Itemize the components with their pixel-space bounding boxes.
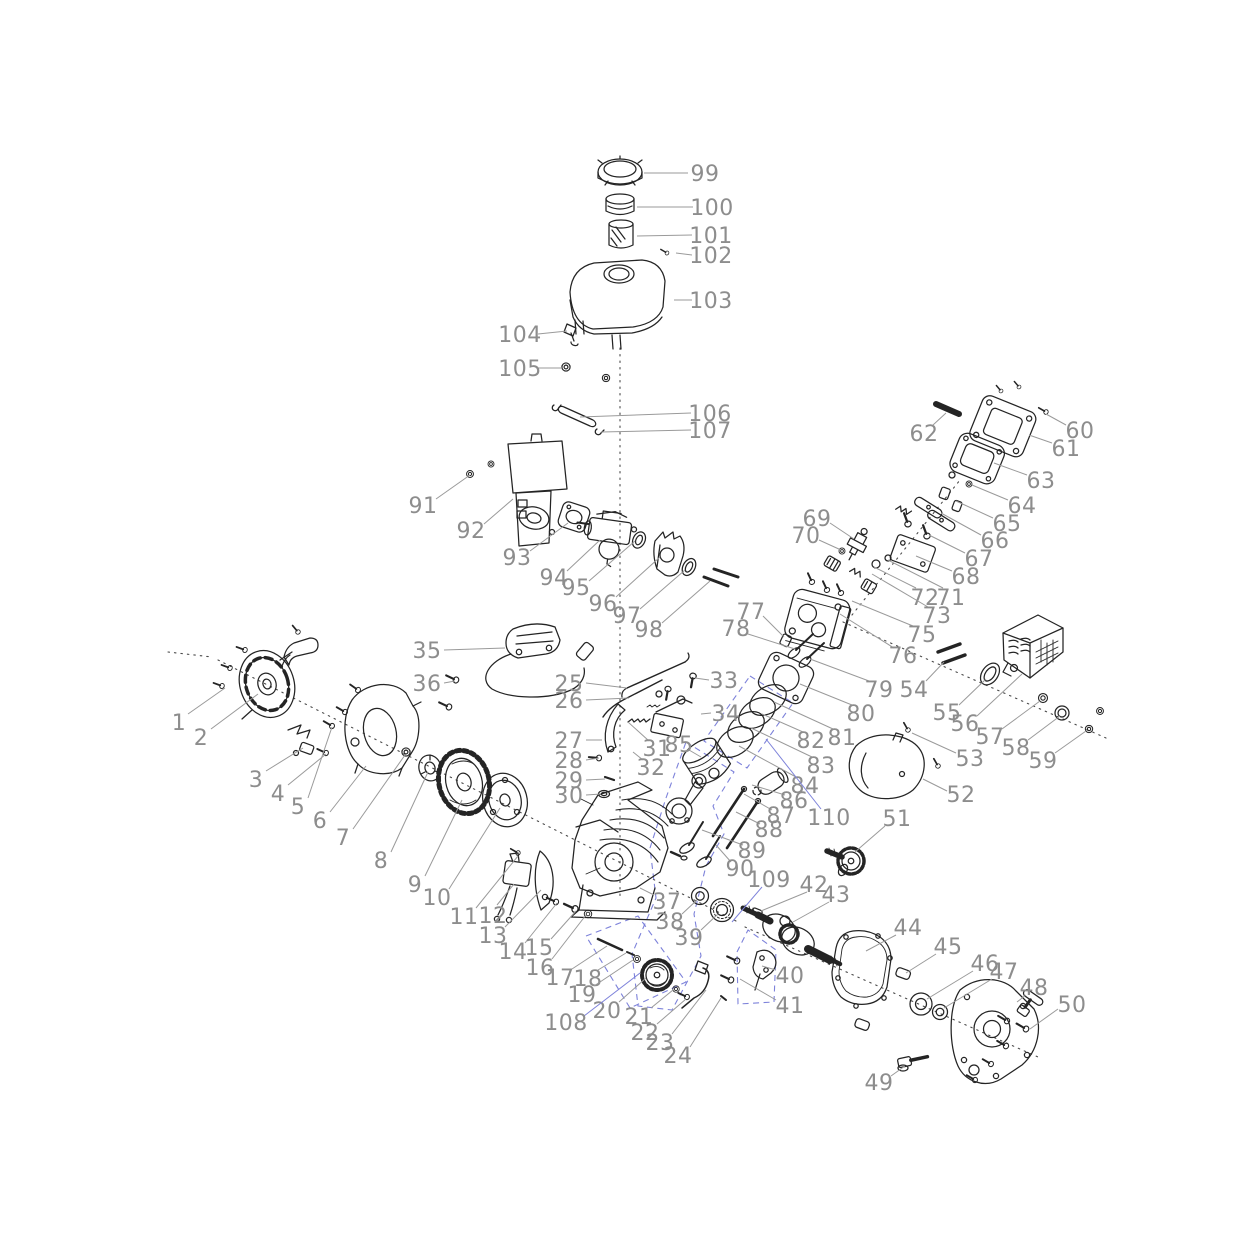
leader-line-5 — [308, 727, 332, 798]
part-label-99: 99 — [691, 162, 720, 187]
leader-line-13 — [505, 890, 541, 927]
fan-cover — [345, 685, 421, 776]
part-label-24: 24 — [664, 1044, 693, 1069]
leader-line-95 — [589, 541, 635, 581]
leader-line-70 — [819, 540, 841, 550]
carb-gasket-inner — [557, 500, 592, 533]
leader-line-80 — [800, 684, 852, 705]
part-label-91: 91 — [409, 494, 438, 519]
centerlines — [168, 348, 1106, 1057]
leader-line-3 — [266, 748, 303, 771]
part-label-49: 49 — [865, 1071, 894, 1096]
leader-line-10 — [449, 808, 500, 889]
governor-rod — [622, 653, 689, 697]
part-label-8: 8 — [374, 849, 389, 874]
part-label-26: 26 — [555, 689, 584, 714]
callout-labels: 1234567891011121314151617181920212223242… — [172, 162, 1095, 1096]
leader-line-68 — [916, 556, 952, 571]
part-label-85: 85 — [665, 733, 694, 758]
leader-line-65 — [956, 501, 993, 518]
part-label-57: 57 — [976, 725, 1005, 750]
fuel-filter-cup — [609, 220, 633, 248]
crankshaft — [743, 905, 840, 966]
rod-cap — [753, 950, 776, 990]
head-valves — [786, 634, 824, 669]
part-label-36: 36 — [413, 672, 442, 697]
part-label-108: 108 — [544, 1011, 588, 1036]
leader-line-72 — [874, 567, 916, 588]
leader-line-67 — [929, 535, 965, 553]
leader-line-76 — [840, 614, 894, 648]
part-label-9: 9 — [408, 873, 423, 898]
tank-screw — [660, 248, 670, 256]
part-label-34: 34 — [712, 702, 741, 727]
governor-shaft-pin — [598, 939, 641, 963]
part-label-103: 103 — [689, 289, 733, 314]
leader-line-81 — [774, 702, 833, 729]
part-label-104: 104 — [498, 323, 542, 348]
leader-line-69 — [830, 523, 854, 539]
part-label-30: 30 — [555, 784, 584, 809]
air-cleaner — [508, 434, 567, 546]
part-label-95: 95 — [562, 576, 591, 601]
tank-nuts — [562, 363, 610, 382]
heat-shroud — [849, 733, 924, 799]
part-label-51: 51 — [883, 807, 912, 832]
part-label-32: 32 — [637, 756, 666, 781]
leader-line-51 — [855, 826, 885, 852]
leader-line-23 — [672, 990, 706, 1034]
part-label-50: 50 — [1058, 993, 1087, 1018]
part-label-4: 4 — [271, 782, 286, 807]
part-label-80: 80 — [847, 702, 876, 727]
part-label-70: 70 — [792, 524, 821, 549]
fuel-cap — [598, 156, 642, 185]
leader-line-79 — [810, 659, 869, 681]
part-label-63: 63 — [1027, 469, 1056, 494]
leader-line-47 — [944, 979, 992, 1008]
leader-line-54 — [926, 662, 944, 681]
camshaft — [827, 848, 864, 877]
leader-line-98 — [662, 581, 710, 623]
carb-gasket-outer — [630, 530, 648, 550]
part-label-107: 107 — [688, 419, 732, 444]
fuel-filter-neck — [606, 194, 634, 215]
fuel-tank — [570, 260, 665, 349]
oil-seal-left — [692, 888, 709, 905]
throttle-spring — [628, 719, 650, 722]
leader-line-33 — [695, 678, 709, 680]
leader-line-96 — [616, 557, 660, 597]
leader-line-12 — [497, 884, 514, 905]
leader-line-6 — [330, 766, 366, 812]
part-label-62: 62 — [910, 422, 939, 447]
throttle-control — [647, 691, 692, 738]
valvetrain-small-parts — [889, 472, 972, 573]
leader-line-61 — [1029, 435, 1052, 443]
part-label-102: 102 — [689, 244, 733, 269]
leader-line-106 — [580, 413, 691, 417]
part-label-40: 40 — [776, 964, 805, 989]
part-label-43: 43 — [822, 883, 851, 908]
leader-line-11 — [476, 856, 518, 908]
part-label-14: 14 — [499, 940, 528, 965]
part-label-11: 11 — [450, 905, 479, 930]
part-label-61: 61 — [1052, 437, 1081, 462]
part-label-100: 100 — [690, 196, 734, 221]
stiffener-bracket — [535, 851, 553, 910]
part-label-92: 92 — [457, 519, 486, 544]
part-label-35: 35 — [413, 639, 442, 664]
part-label-33: 33 — [710, 669, 739, 694]
leader-line-77 — [763, 616, 784, 637]
flywheel-nut — [402, 748, 410, 756]
parts-diagram-page: 1234567891011121314151617181920212223242… — [0, 0, 1248, 1248]
muffler — [1003, 615, 1063, 678]
part-label-110: 110 — [807, 806, 851, 831]
leader-line-34 — [701, 713, 711, 714]
leader-line-22 — [657, 999, 686, 1024]
part-label-81: 81 — [828, 726, 857, 751]
part-label-44: 44 — [894, 916, 923, 941]
carb-insulator — [654, 532, 684, 576]
part-label-78: 78 — [722, 617, 751, 642]
part-label-58: 58 — [1002, 736, 1031, 761]
leader-line-66 — [941, 513, 981, 535]
part-label-79: 79 — [865, 678, 894, 703]
part-label-105: 105 — [498, 357, 542, 382]
stop-switch-wire — [288, 725, 314, 756]
leader-line-1 — [188, 688, 225, 714]
part-label-7: 7 — [336, 826, 351, 851]
part-label-10: 10 — [423, 886, 452, 911]
part-label-98: 98 — [635, 618, 664, 643]
leader-line-53 — [912, 733, 956, 753]
part-label-48: 48 — [1020, 976, 1049, 1001]
recoil-starter — [231, 638, 318, 725]
leader-line-21 — [651, 990, 673, 1008]
leader-line-9 — [425, 800, 462, 876]
part-label-39: 39 — [675, 926, 704, 951]
head-studs — [938, 644, 965, 663]
woodruff-key-flywheel — [510, 847, 521, 856]
part-label-52: 52 — [947, 783, 976, 808]
breather-pipe — [936, 404, 959, 414]
leader-line-64 — [972, 485, 1008, 500]
leader-line-57 — [1002, 701, 1040, 729]
part-label-47: 47 — [990, 960, 1019, 985]
part-label-1: 1 — [172, 711, 187, 736]
shroud-screws — [902, 722, 941, 769]
leader-line-35 — [444, 648, 505, 650]
leader-line-94 — [567, 540, 600, 571]
part-label-109: 109 — [747, 868, 791, 893]
leader-line-20 — [619, 978, 646, 1002]
leader-line-17 — [572, 946, 607, 969]
leader-line-39 — [701, 914, 718, 930]
part-label-5: 5 — [291, 795, 306, 820]
group-outline-rod-bolts — [737, 930, 776, 1004]
leader-line-59 — [1055, 731, 1086, 753]
cover-screws — [316, 682, 361, 756]
fuel-hose — [552, 405, 604, 435]
leader-line-8 — [391, 772, 428, 852]
cylinder-head — [782, 572, 853, 655]
part-label-6: 6 — [313, 809, 328, 834]
part-label-3: 3 — [249, 768, 264, 793]
leader-line-97 — [640, 570, 685, 609]
leader-line-15 — [551, 911, 576, 939]
part-label-45: 45 — [934, 935, 963, 960]
main-bearing-right — [910, 993, 932, 1015]
part-label-41: 41 — [776, 994, 805, 1019]
leader-line-60 — [1046, 414, 1066, 425]
part-label-93: 93 — [503, 546, 532, 571]
part-label-82: 82 — [797, 729, 826, 754]
connecting-rod — [666, 774, 706, 824]
tappets-springs — [823, 555, 891, 594]
part-label-20: 20 — [593, 999, 622, 1024]
leader-line-16 — [552, 915, 586, 959]
leader-line-56 — [977, 674, 1022, 716]
leader-line-45 — [906, 954, 936, 973]
part-label-2: 2 — [194, 726, 209, 751]
leader-line-4 — [288, 754, 326, 785]
leader-line-50 — [1030, 1009, 1058, 1029]
part-label-76: 76 — [889, 644, 918, 669]
plug-washer — [839, 548, 845, 554]
leader-line-104 — [538, 331, 567, 334]
leader-line-55 — [959, 679, 986, 705]
muffler-hardware — [1039, 694, 1104, 733]
valve-cover-screws — [995, 380, 1049, 415]
air-cleaner-nuts — [467, 461, 494, 477]
leader-line-58 — [1028, 716, 1060, 740]
part-label-53: 53 — [956, 747, 985, 772]
leader-line-101 — [637, 235, 692, 236]
leader-line-91 — [436, 475, 470, 499]
spark-plug — [841, 525, 873, 564]
part-label-59: 59 — [1029, 749, 1058, 774]
part-label-54: 54 — [900, 678, 929, 703]
block-bolts — [546, 895, 592, 918]
leader-line-75 — [852, 601, 913, 626]
leader-line-29 — [586, 779, 605, 780]
engine-exploded-diagram: 1234567891011121314151617181920212223242… — [0, 0, 1248, 1248]
leader-line-107 — [601, 430, 691, 432]
governor-gear — [642, 960, 672, 990]
leader-line-25 — [586, 683, 627, 688]
leader-line-92 — [484, 499, 513, 524]
carb-studs — [704, 569, 738, 586]
leader-line-84 — [739, 746, 796, 777]
leader-line-52 — [923, 779, 947, 791]
